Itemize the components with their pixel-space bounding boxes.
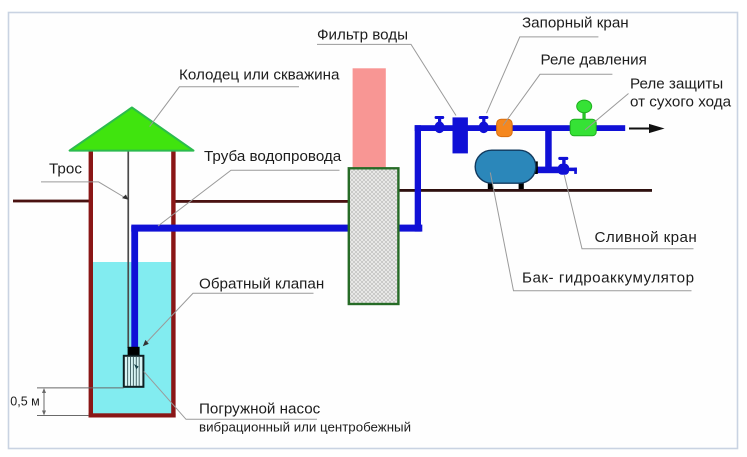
svg-text:Обратный клапан: Обратный клапан (199, 276, 324, 293)
svg-text:Погружной насос: Погружной насос (199, 400, 321, 417)
svg-text:Трос: Трос (49, 160, 82, 177)
svg-text:Реле защиты: Реле защиты (630, 76, 723, 93)
svg-text:Реле давления: Реле давления (541, 52, 647, 69)
svg-text:Труба водопровода: Труба водопровода (204, 148, 342, 165)
svg-text:0,5 м: 0,5 м (10, 395, 39, 409)
svg-text:Запорный кран: Запорный кран (522, 15, 629, 32)
svg-text:от сухого хода: от сухого хода (630, 93, 732, 110)
svg-text:вибрационный или центробежный: вибрационный или центробежный (199, 420, 411, 435)
svg-text:Сливной кран: Сливной кран (595, 229, 698, 246)
svg-text:Бак- гидроаккумулятор: Бак- гидроаккумулятор (522, 270, 695, 287)
svg-text:Колодец или скважина: Колодец или скважина (179, 66, 340, 83)
svg-text:Фильтр воды: Фильтр воды (317, 26, 408, 43)
